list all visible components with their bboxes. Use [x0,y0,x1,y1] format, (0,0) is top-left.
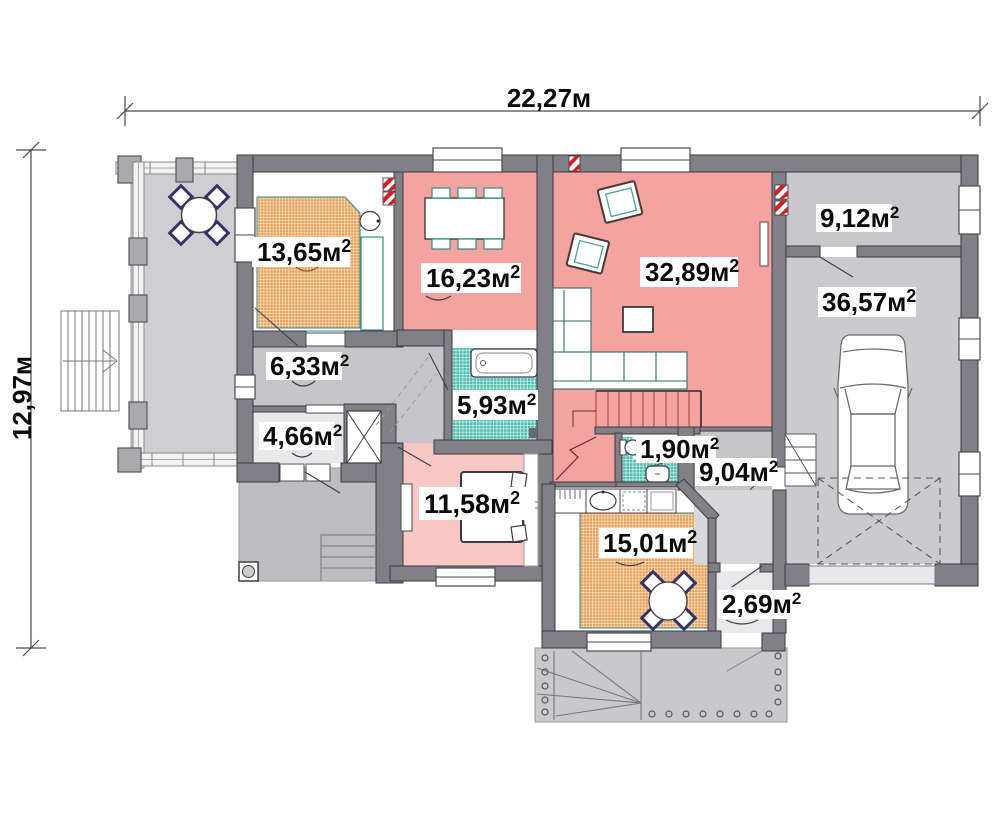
svg-text:36,57м2: 36,57м2 [822,286,916,317]
svg-text:12,97м: 12,97м [7,356,37,440]
svg-text:11,58м2: 11,58м2 [424,488,520,519]
svg-text:22,27м: 22,27м [507,83,591,113]
svg-text:9,12м2: 9,12м2 [820,203,899,233]
svg-text:6,33м2: 6,33м2 [270,351,349,381]
svg-text:9,04м2: 9,04м2 [699,457,778,487]
svg-text:4,66м2: 4,66м2 [263,421,342,451]
svg-text:32,89м2: 32,89м2 [645,256,739,287]
svg-text:13,65м2: 13,65м2 [257,236,351,267]
svg-text:5,93м2: 5,93м2 [457,390,536,420]
svg-text:16,23м2: 16,23м2 [426,262,520,293]
svg-text:2,69м2: 2,69м2 [722,589,801,619]
svg-text:15,01м2: 15,01м2 [603,527,697,558]
